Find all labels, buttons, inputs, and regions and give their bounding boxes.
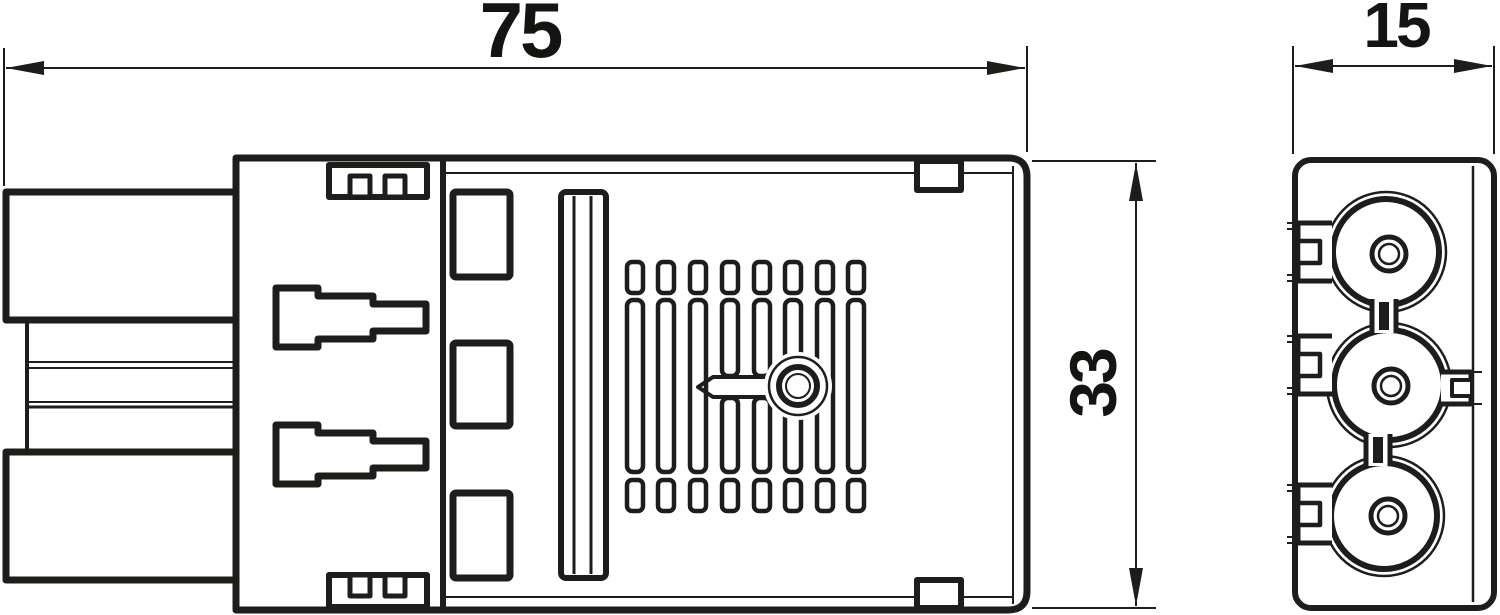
end-notch-bottom xyxy=(917,580,961,608)
dim-length-label: 75 xyxy=(480,0,562,74)
arrowhead-down xyxy=(1129,568,1143,606)
contact-hole-3 xyxy=(1371,499,1405,533)
arrowhead-left xyxy=(1295,59,1333,73)
screw-boss xyxy=(764,352,832,420)
cavity-neck-2 xyxy=(1366,434,1390,466)
terminal-windows xyxy=(453,192,510,578)
contact-hole-1 xyxy=(1372,237,1406,271)
arrowhead-right xyxy=(987,61,1025,75)
cable-section xyxy=(6,192,234,580)
drawing-canvas: 75 33 15 xyxy=(0,0,1500,615)
front-view xyxy=(1287,160,1494,608)
arrowhead-left xyxy=(6,61,44,75)
dimension-height-33: 33 xyxy=(1032,161,1156,608)
contact-hole-2 xyxy=(1374,369,1408,403)
dim-height-label: 33 xyxy=(1056,349,1130,418)
arrowhead-up xyxy=(1129,163,1143,201)
connector-drawing: 75 33 15 xyxy=(0,0,1500,615)
dimension-width-15: 15 xyxy=(1293,0,1494,154)
cavity-neck-1 xyxy=(1372,299,1396,333)
side-view xyxy=(6,158,1027,610)
dim-width-label: 15 xyxy=(1363,0,1430,61)
arrowhead-right xyxy=(1454,59,1492,73)
coding-tab-bottom xyxy=(329,575,427,607)
rib-bar xyxy=(561,192,606,578)
end-notch-top xyxy=(917,161,961,190)
coding-tab-top xyxy=(329,165,427,197)
